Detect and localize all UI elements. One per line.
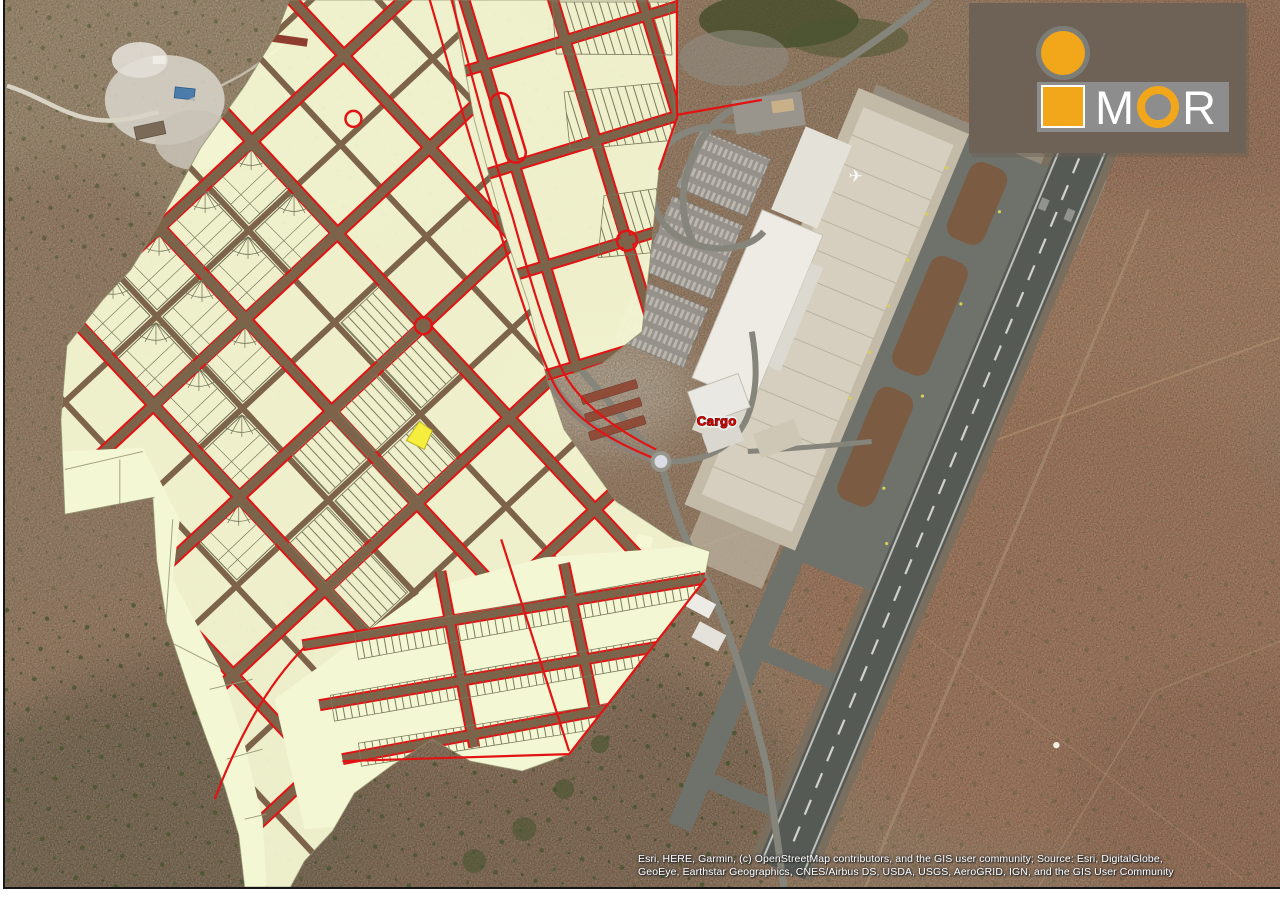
logo-dot-icon: [1041, 31, 1085, 75]
cargo-label: Cargo: [697, 414, 737, 429]
attribution-line-2: GeoEye, Earthstar Geographics, CNES/Airb…: [638, 866, 1270, 879]
small-structure: [1053, 742, 1059, 748]
logo-square-icon: [1041, 85, 1085, 128]
logo-text: M R: [1095, 82, 1216, 132]
logo-o-ring-icon: [1137, 86, 1179, 128]
airport-roundabout: [652, 453, 669, 470]
map-labels: Cargo Cargo: [697, 414, 737, 429]
logo-letter-m: M: [1095, 84, 1134, 131]
attribution-line-1: Esri, HERE, Garmin, (c) OpenStreetMap co…: [638, 853, 1270, 866]
logo-letter-r: R: [1182, 84, 1216, 131]
page: ✈: [0, 0, 1280, 905]
map-canvas[interactable]: ✈: [3, 0, 1280, 889]
attribution-text: Esri, HERE, Garmin, (c) OpenStreetMap co…: [638, 853, 1270, 879]
airplane-icon: ✈: [848, 166, 863, 187]
imor-logo: M R: [969, 3, 1246, 153]
